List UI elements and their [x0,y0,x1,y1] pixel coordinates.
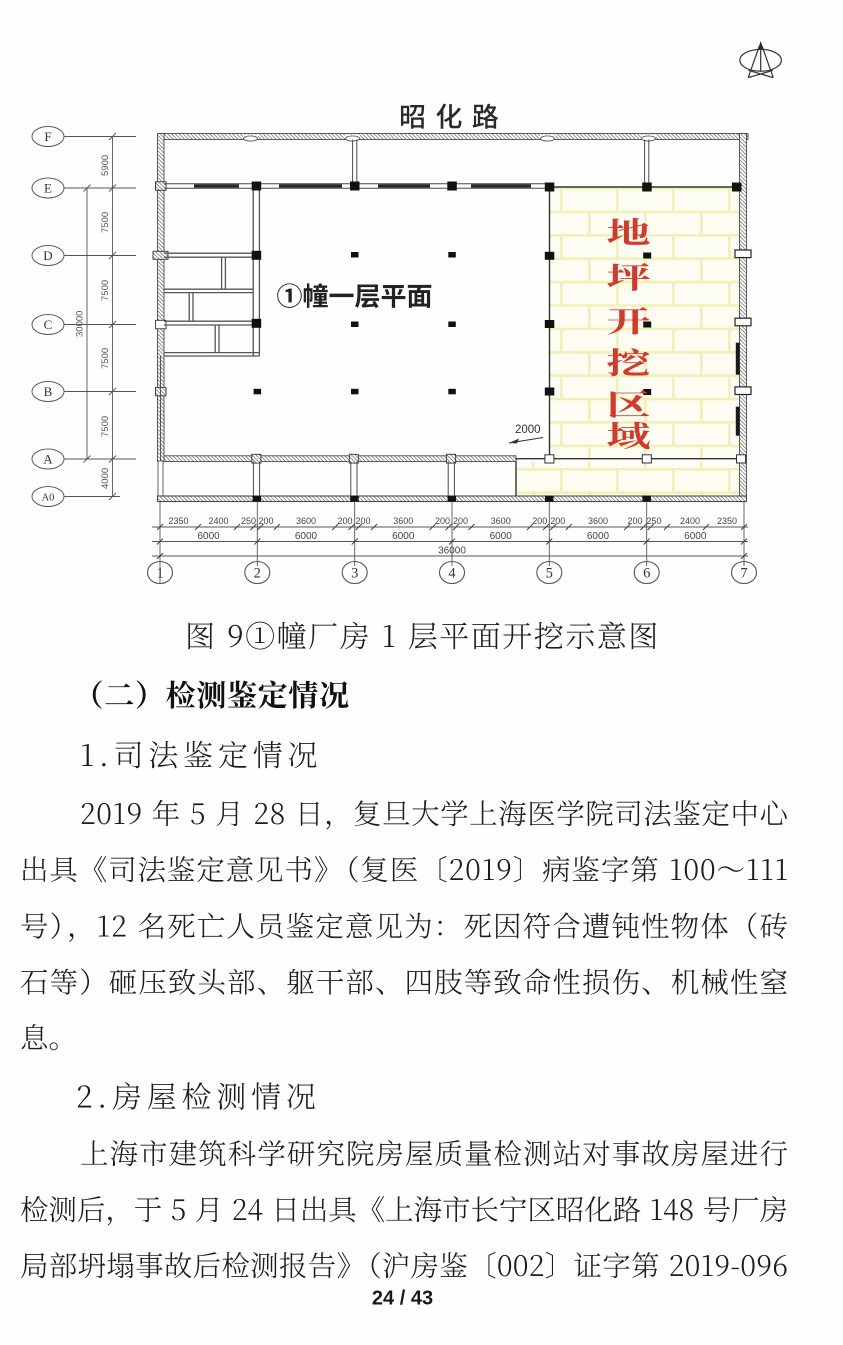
svg-text:7500: 7500 [100,348,111,369]
svg-text:7: 7 [740,566,747,582]
svg-text:5900: 5900 [100,155,111,176]
svg-text:C: C [44,317,53,332]
svg-text:D: D [43,248,52,263]
svg-text:6000: 6000 [684,531,707,542]
svg-text:3600: 3600 [296,516,316,526]
svg-text:5: 5 [546,566,553,582]
svg-text:200: 200 [453,516,468,526]
svg-text:250: 250 [646,516,661,526]
svg-text:7500: 7500 [100,280,111,301]
svg-text:2400: 2400 [680,516,700,526]
svg-text:2350: 2350 [168,516,188,526]
svg-text:2350: 2350 [717,516,737,526]
svg-text:7500: 7500 [100,212,111,233]
svg-text:2400: 2400 [208,516,228,526]
svg-text:E: E [44,181,52,196]
svg-text:250: 250 [241,516,256,526]
svg-text:6000: 6000 [392,531,415,542]
svg-text:7500: 7500 [100,416,111,437]
svg-text:6000: 6000 [197,531,220,542]
svg-text:A0: A0 [42,493,55,504]
svg-text:A: A [43,452,53,467]
svg-text:200: 200 [627,516,642,526]
svg-text:2: 2 [254,566,261,582]
svg-text:3600: 3600 [491,516,511,526]
svg-text:3600: 3600 [588,516,608,526]
svg-text:200: 200 [532,516,547,526]
svg-text:24 / 43: 24 / 43 [372,1288,433,1310]
svg-text:30000: 30000 [75,311,86,337]
svg-text:4: 4 [448,566,456,582]
svg-text:36000: 36000 [438,546,466,557]
svg-text:6000: 6000 [587,531,610,542]
svg-text:6: 6 [643,566,650,582]
svg-text:1: 1 [156,566,163,582]
svg-text:B: B [44,384,53,399]
svg-text:200: 200 [550,516,565,526]
svg-text:F: F [44,129,51,144]
svg-text:200: 200 [435,516,450,526]
svg-text:3600: 3600 [393,516,413,526]
svg-text:2000: 2000 [515,424,541,436]
svg-text:4000: 4000 [100,468,111,489]
svg-text:200: 200 [337,516,352,526]
svg-text:200: 200 [355,516,370,526]
svg-text:200: 200 [258,516,273,526]
svg-text:3: 3 [351,566,358,582]
svg-text:6000: 6000 [490,531,513,542]
svg-text:6000: 6000 [295,531,318,542]
